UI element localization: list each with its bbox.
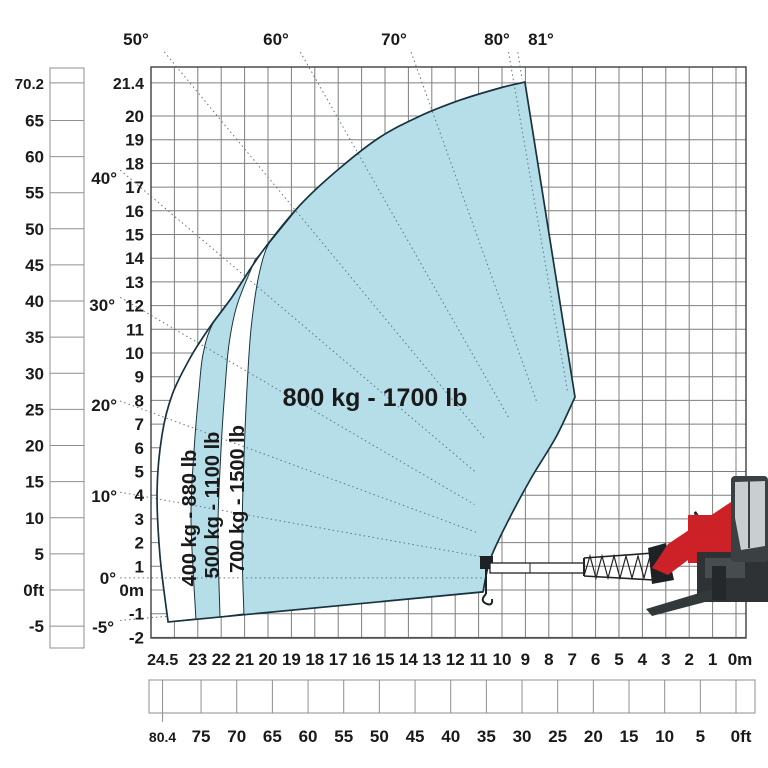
y-axis-m-label: 1 <box>135 557 144 576</box>
x-axis-ft-label: 0ft <box>731 727 752 746</box>
x-axis-m-label: 19 <box>282 650 301 669</box>
y-axis-m-label: 0m <box>119 581 144 600</box>
y-axis-m-label: 9 <box>135 368 144 387</box>
x-axis-ft-label: 35 <box>477 727 496 746</box>
x-axis-ft-label: 70 <box>227 727 246 746</box>
x-axis-ft-label: 45 <box>406 727 425 746</box>
y-axis-m-label: 15 <box>125 226 144 245</box>
y-axis-ft-label: 35 <box>25 328 44 347</box>
angle-label-10: 10° <box>91 487 117 506</box>
y-axis-m-label: 12 <box>125 297 144 316</box>
x-axis-ft-label: 5 <box>696 727 705 746</box>
y-axis-ft-label: 10 <box>25 509 44 528</box>
x-axis-m-label: 8 <box>544 650 553 669</box>
x-axis-m-label: 21 <box>235 650 254 669</box>
x-axis-m-label: 13 <box>422 650 441 669</box>
y-axis-ft-label: 50 <box>25 220 44 239</box>
y-axis-m-label: 3 <box>135 510 144 529</box>
angle-label--5: -5° <box>92 618 114 637</box>
x-axis-m-label: 16 <box>352 650 371 669</box>
y-axis-m-label: 16 <box>125 202 144 221</box>
y-axis-m-label: 21.4 <box>113 76 144 93</box>
x-axis-ft-label: 15 <box>620 727 639 746</box>
y-axis-m-label: 11 <box>126 320 144 339</box>
y-axis-m-label: 17 <box>125 178 144 197</box>
x-axis-m-label: 23 <box>188 650 207 669</box>
y-axis-ft-label: -5 <box>29 617 44 636</box>
angle-label-50: 50° <box>123 30 149 49</box>
y-axis-m-label: 18 <box>125 154 144 173</box>
x-axis-m-label: 14 <box>399 650 418 669</box>
angle-label-0: 0° <box>100 569 116 588</box>
x-axis-m-label: 4 <box>638 650 648 669</box>
angle-line-81 <box>518 52 522 79</box>
load-chart: 70.265605550454035302520151050ft-521.420… <box>0 0 768 768</box>
x-axis-m-label: 12 <box>446 650 465 669</box>
y-axis-m-label: 14 <box>125 249 144 268</box>
x-axis-ft-label: 10 <box>655 727 674 746</box>
y-axis-m-label: 4 <box>135 486 145 505</box>
zone-label-500kg: 500 kg - 1100 lb <box>202 432 224 579</box>
hook-icon <box>483 594 492 604</box>
zone-label-700kg: 700 kg - 1500 lb <box>227 425 249 573</box>
x-axis-ft-label: 55 <box>334 727 353 746</box>
y-axis-m-label: 7 <box>135 415 144 434</box>
x-axis-ft-label: 65 <box>263 727 282 746</box>
telehandler-machine: M <box>480 476 768 616</box>
x-axis-m-label: 9 <box>521 650 530 669</box>
y-axis-ft-label: 40 <box>25 292 44 311</box>
x-axis-m-label: 2 <box>684 650 693 669</box>
angle-label-70: 70° <box>381 30 407 49</box>
y-axis-ft-label: 55 <box>25 184 44 203</box>
y-axis-m-label: 8 <box>135 391 144 410</box>
x-axis-m-label: 20 <box>259 650 278 669</box>
y-axis-m-label: 13 <box>125 273 144 292</box>
x-axis-ft-label: 80.4 <box>149 729 176 745</box>
x-axis-ft-label: 75 <box>192 727 211 746</box>
y-axis-ft-label: 65 <box>25 111 44 130</box>
x-axis-ft-label: 20 <box>584 727 603 746</box>
x-axis-ft-label: 60 <box>299 727 318 746</box>
y-axis-ft-label: 0ft <box>23 581 44 600</box>
y-axis-ft-label: 70.2 <box>15 76 44 93</box>
x-axis-m-label: 1 <box>708 650 717 669</box>
y-axis-m-label: -1 <box>129 605 144 624</box>
y-axis-ft-label: 25 <box>25 400 44 419</box>
angle-label-30: 30° <box>89 296 115 315</box>
y-axis-m-label: 5 <box>135 463 144 482</box>
x-axis-m-label: 17 <box>329 650 348 669</box>
x-axis-m-label: 22 <box>212 650 231 669</box>
angle-label-81: 81° <box>528 30 554 49</box>
x-axis-m-label: 15 <box>376 650 395 669</box>
x-axis-m-label: 6 <box>591 650 600 669</box>
x-axis-m-label: 3 <box>661 650 670 669</box>
angle-label-60: 60° <box>263 30 289 49</box>
angle-label-40: 40° <box>91 169 117 188</box>
x-axis-m-label: 10 <box>493 650 512 669</box>
x-axis-m-label: 5 <box>614 650 623 669</box>
x-axis-ft-label: 30 <box>513 727 532 746</box>
y-axis-ft-label: 60 <box>25 148 44 167</box>
y-axis-ft-label: 45 <box>25 256 44 275</box>
y-axis-ft-label: 5 <box>35 545 44 564</box>
y-axis-m-label: 6 <box>135 439 144 458</box>
load-chart-page: 70.265605550454035302520151050ft-521.420… <box>0 0 768 768</box>
x-axis-m-label: 11 <box>470 650 488 669</box>
angle-label-20: 20° <box>91 396 117 415</box>
y-axis-m-label: 19 <box>125 131 144 150</box>
x-axis-ft-label: 25 <box>548 727 567 746</box>
x-axis-m-label: 18 <box>305 650 324 669</box>
x-axis-m-label: 0m <box>728 650 753 669</box>
y-axis-ft-label: 15 <box>25 473 44 492</box>
angle-label-80: 80° <box>484 30 510 49</box>
x-axis-ft-label: 50 <box>370 727 389 746</box>
x-axis-m-label: 24.5 <box>147 652 178 669</box>
y-axis-m-label: 20 <box>125 107 144 126</box>
y-axis-ft-label: 30 <box>25 364 44 383</box>
x-axis-m-label: 7 <box>567 650 576 669</box>
y-axis-m-label: 2 <box>135 534 144 553</box>
y-axis-m-label: -2 <box>129 628 144 647</box>
y-axis-m-label: 10 <box>125 344 144 363</box>
x-axis-ft-label: 40 <box>441 727 460 746</box>
zone-label-400kg: 400 kg - 880 lb <box>179 450 201 587</box>
zone-label-800kg: 800 kg - 1700 lb <box>283 384 468 412</box>
y-axis-ft-label: 20 <box>25 437 44 456</box>
